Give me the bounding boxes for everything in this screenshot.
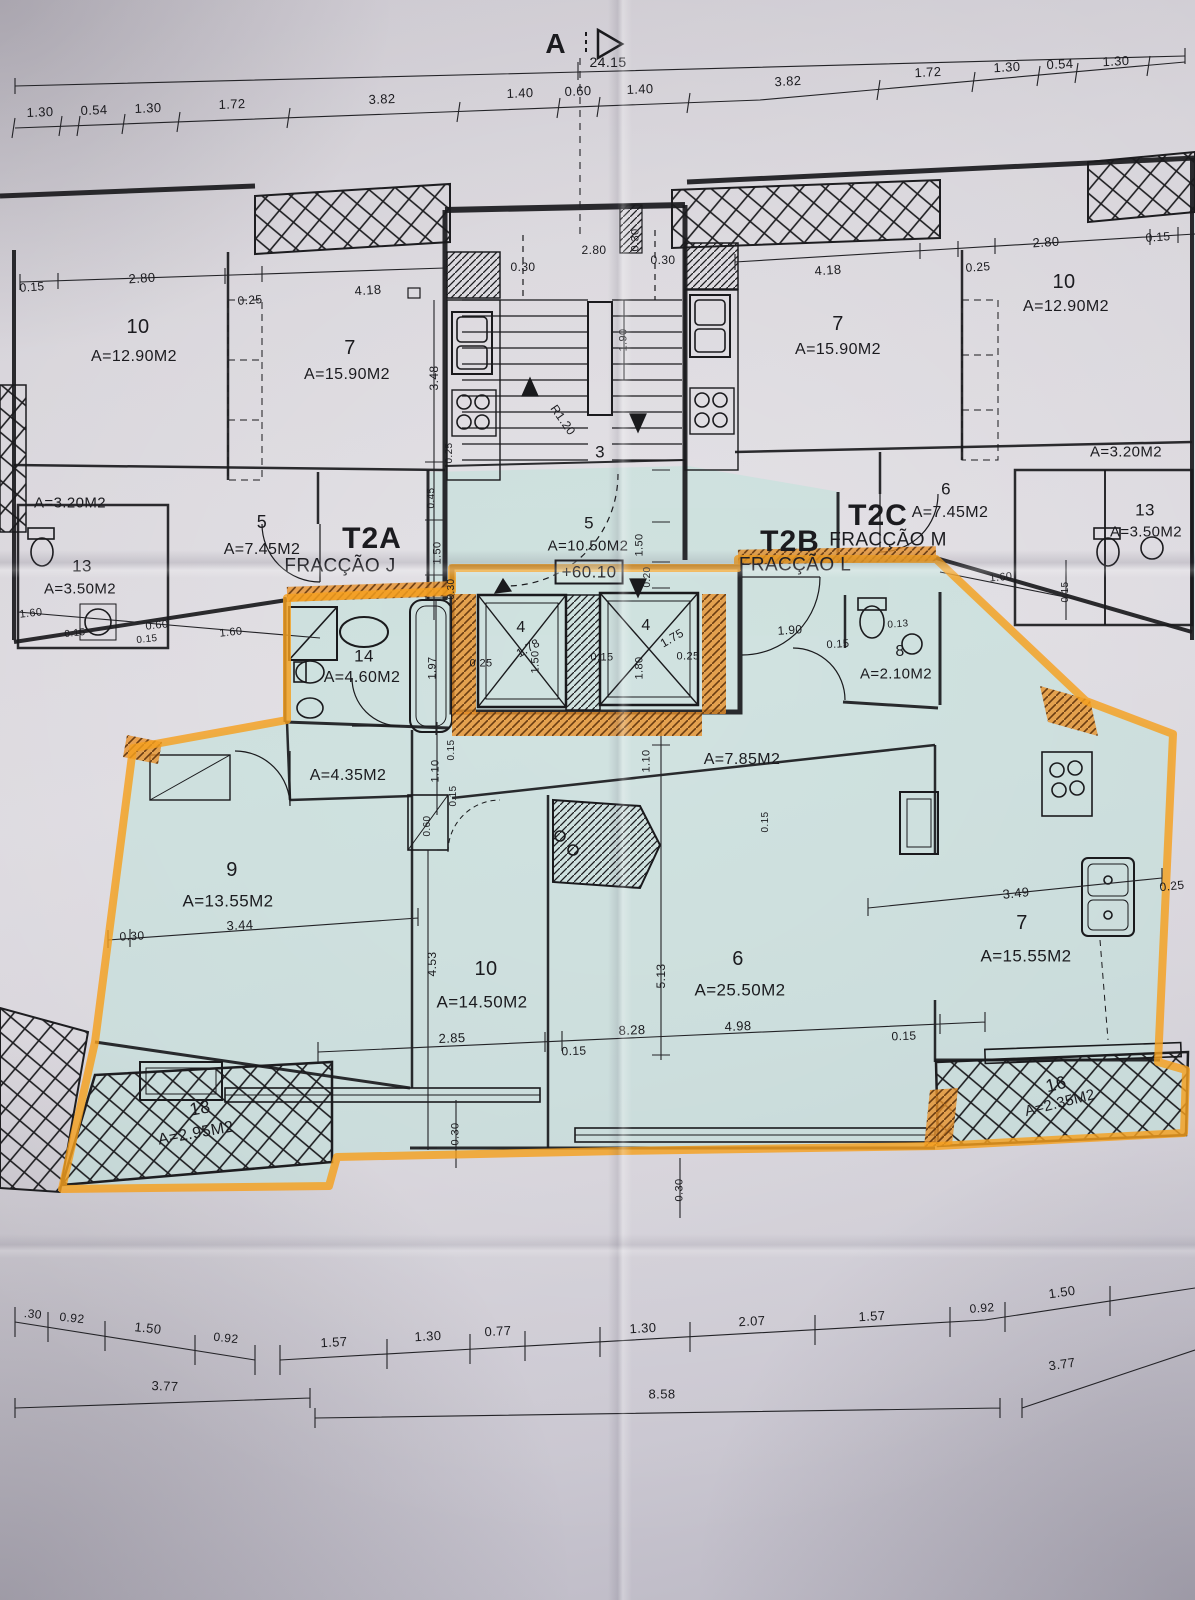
dim-label-bottom_dims-0: .30 [23, 1307, 42, 1321]
room-number: 10 [126, 317, 149, 337]
dim-label-highlighted_unit-11: 1.80 [635, 656, 646, 679]
room-area: A=12.90M2 [91, 349, 177, 365]
elevator-number: 4 [641, 618, 650, 634]
plan-labels: A24.151.300.541.301.723.821.400.601.403.… [0, 0, 1195, 1600]
dim-label-upper_left_apartment-16: 0.60 [145, 619, 169, 632]
dim-label-upper_right_apartment-14: 0.15 [1061, 581, 1071, 602]
room-number: 6 [941, 481, 951, 498]
dim-label-bottom_dims-8: 2.07 [738, 1314, 766, 1328]
dim-label-upper_right_apartment-3: 2.80 [1032, 235, 1060, 250]
dim-label-highlighted_unit-13: 0.15 [826, 639, 850, 652]
dim-label-highlighted_unit-5: 0.25 [469, 659, 492, 670]
dim-label-top_dims-9: 1.72 [914, 65, 942, 79]
dim-label-top_dims-12: 1.30 [1102, 54, 1130, 68]
dim-label-highlighted_unit-19: 0.15 [447, 739, 457, 760]
dim-label-top_dims-3: 1.72 [218, 97, 245, 111]
room-number: 3 [595, 444, 605, 461]
fraction-name-m: FRACÇÃO M [829, 531, 947, 550]
dim-label-top_dims-2: 1.30 [134, 101, 161, 115]
dim-label-bottom_dims-3: 0.92 [213, 1331, 239, 1346]
dim-label-upper_left_apartment-15: 0.15 [64, 628, 86, 640]
dim-label-bottom_dims-14: 3.77 [1048, 1356, 1076, 1373]
room-number: 7 [832, 314, 844, 334]
elevator-number: 4 [516, 620, 525, 636]
room-number: 5 [257, 513, 267, 531]
dim-label-bottom_dims-7: 1.30 [629, 1321, 657, 1335]
dim-label-top_dims-4: 3.82 [368, 92, 395, 106]
dim-label-bottom_dims-13: 8.58 [649, 1388, 676, 1401]
dim-label-highlighted_unit-40: 3.49 [1002, 885, 1030, 901]
dim-label-top_dims-11: 0.54 [1046, 57, 1074, 71]
room-area: A=15.55M2 [980, 948, 1071, 965]
paper-fold-vertical [608, 0, 632, 1600]
room-area: A=4.35M2 [310, 768, 387, 784]
room-number: 5 [584, 515, 594, 532]
dim-label-highlighted_unit-36: 0.15 [561, 1045, 586, 1058]
dim-label-bottom_dims-12: 3.77 [151, 1379, 178, 1393]
room-area: A=13.55M2 [182, 893, 273, 910]
dim-label-highlighted_unit-9: 0.25 [676, 652, 699, 663]
dim-label-highlighted_unit-38: 4.98 [724, 1019, 751, 1033]
dim-label-highlighted_unit-14: 0.13 [887, 619, 909, 630]
room-area: A=25.50M2 [694, 982, 785, 999]
room-number: 9 [226, 860, 238, 880]
dim-label-upper_left_apartment-18: 1.60 [219, 626, 243, 639]
dim-label-highlighted_unit-27: 3.44 [226, 918, 254, 932]
dim-label-upper_left_apartment-14: 1.60 [19, 607, 43, 620]
room-number: 18 [188, 1097, 212, 1118]
room-area: A=3.50M2 [1110, 525, 1182, 540]
dim-label-upper_right_apartment-0: 4.18 [814, 263, 842, 278]
dim-label-hall-5: 0.30 [447, 578, 457, 599]
room-area: A=2.95M2 [157, 1119, 235, 1148]
room-area: A=2.10M2 [860, 667, 932, 682]
room-area: A=7.85M2 [704, 752, 781, 768]
room-number: 10 [474, 959, 497, 979]
room-number: 6 [732, 949, 744, 969]
dim-label-upper_left_apartment-1: 2.80 [128, 271, 156, 286]
dim-label-top_dims-5: 1.40 [506, 86, 533, 100]
room-area: A=14.50M2 [436, 994, 527, 1011]
dim-label-highlighted_unit-28: 0.30 [119, 929, 145, 942]
dim-label-bottom_dims-5: 1.30 [414, 1329, 442, 1343]
dim-label-highlighted_unit-31: 4.53 [426, 952, 438, 977]
dim-label-bottom_dims-1: 0.92 [59, 1311, 85, 1326]
dim-label-bottom_dims-2: 1.50 [134, 1320, 162, 1336]
dim-label-highlighted_unit-8: 1.75 [658, 627, 686, 650]
room-number: 13 [1135, 502, 1155, 519]
room-number: 14 [354, 648, 374, 665]
dim-label-upper_left_apartment-3: 4.18 [354, 283, 382, 298]
room-area: A=3.20M2 [1090, 445, 1162, 460]
dim-label-bottom_dims-11: 1.50 [1048, 1284, 1076, 1301]
dim-label-highlighted_unit-39: 0.15 [891, 1030, 916, 1043]
dim-label-highlighted_unit-35: 2.85 [438, 1031, 465, 1045]
unit-code-t2c: T2C [848, 501, 908, 531]
dim-label-stair_core-1: 0.30 [511, 261, 536, 273]
paper-fold-horizontal-upper [0, 550, 1195, 578]
dim-label-highlighted_unit-24: 0.15 [761, 811, 771, 832]
dim-label-highlighted_unit-6: 1.50 [531, 650, 542, 673]
dim-label-top_dims-6: 0.60 [564, 84, 591, 98]
dim-label-stair_core-5: R1.20 [548, 403, 577, 438]
dim-label-stair_core-0: 2.80 [582, 244, 607, 256]
dim-label-hall-3: 0.45 [427, 487, 437, 508]
dim-label-upper_left_apartment-17: 0.15 [136, 634, 158, 646]
room-number: 8 [895, 644, 904, 660]
room-area: A=3.50M2 [44, 582, 116, 597]
dim-label-highlighted_unit-12: 1.90 [777, 623, 803, 637]
dim-label-upper_right_apartment-4: 0.15 [1145, 230, 1171, 244]
room-number: 10 [1052, 272, 1075, 292]
dim-label-highlighted_unit-22: 1.10 [642, 749, 653, 772]
dim-label-upper_left_apartment-8: 3.48 [428, 366, 440, 391]
dim-label-highlighted_unit-45: 0.30 [675, 1178, 686, 1201]
dim-label-upper_right_apartment-5: 0.25 [965, 260, 991, 274]
dim-label-highlighted_unit-32: 5.13 [655, 964, 667, 989]
dim-label-highlighted_unit-20: 0.15 [449, 785, 459, 806]
dim-label-bottom_dims-6: 0.77 [484, 1324, 512, 1338]
dim-label-bottom_dims-4: 1.57 [320, 1335, 348, 1349]
floorplan-photo: A24.151.300.541.301.723.821.400.601.403.… [0, 0, 1195, 1600]
dim-label-top_dims-8: 3.82 [774, 74, 802, 88]
room-number: 7 [344, 338, 356, 358]
room-area: A=15.90M2 [304, 367, 390, 383]
dim-label-bottom_dims-10: 0.92 [969, 1301, 995, 1315]
room-area: A=7.45M2 [912, 505, 989, 521]
dim-label-stair_core-2: 0.30 [651, 254, 676, 266]
dim-label-upper_left_apartment-2: 0.25 [237, 293, 263, 307]
dim-label-top_dims-10: 1.30 [993, 60, 1021, 74]
dim-label-upper_left_apartment-0: 0.15 [19, 280, 45, 294]
room-number: 7 [1016, 913, 1028, 933]
dim-label-highlighted_unit-44: 0.30 [451, 1122, 462, 1145]
room-area: A=15.90M2 [795, 342, 881, 358]
room-area: A=12.90M2 [1023, 299, 1109, 315]
dim-label-top_dims-0: 1.30 [26, 105, 53, 119]
dim-label-stair_core-7: 0.25 [445, 442, 455, 463]
dim-label-highlighted_unit-21: 0.60 [423, 815, 433, 836]
dim-label-highlighted_unit-2: 1.97 [428, 656, 439, 679]
paper-fold-horizontal-lower [0, 1234, 1195, 1258]
dim-label-highlighted_unit-43: 0.25 [1159, 879, 1185, 894]
dim-label-highlighted_unit-18: 1.10 [431, 759, 442, 782]
section-marker-letter: A [545, 30, 566, 58]
room-area: A=4.60M2 [324, 670, 401, 686]
dim-label-top_dims-1: 0.54 [80, 103, 107, 117]
dim-label-stair_core-3: 0.30 [631, 228, 642, 251]
dim-label-bottom_dims-9: 1.57 [858, 1309, 886, 1323]
room-area: A=3.20M2 [34, 496, 106, 511]
